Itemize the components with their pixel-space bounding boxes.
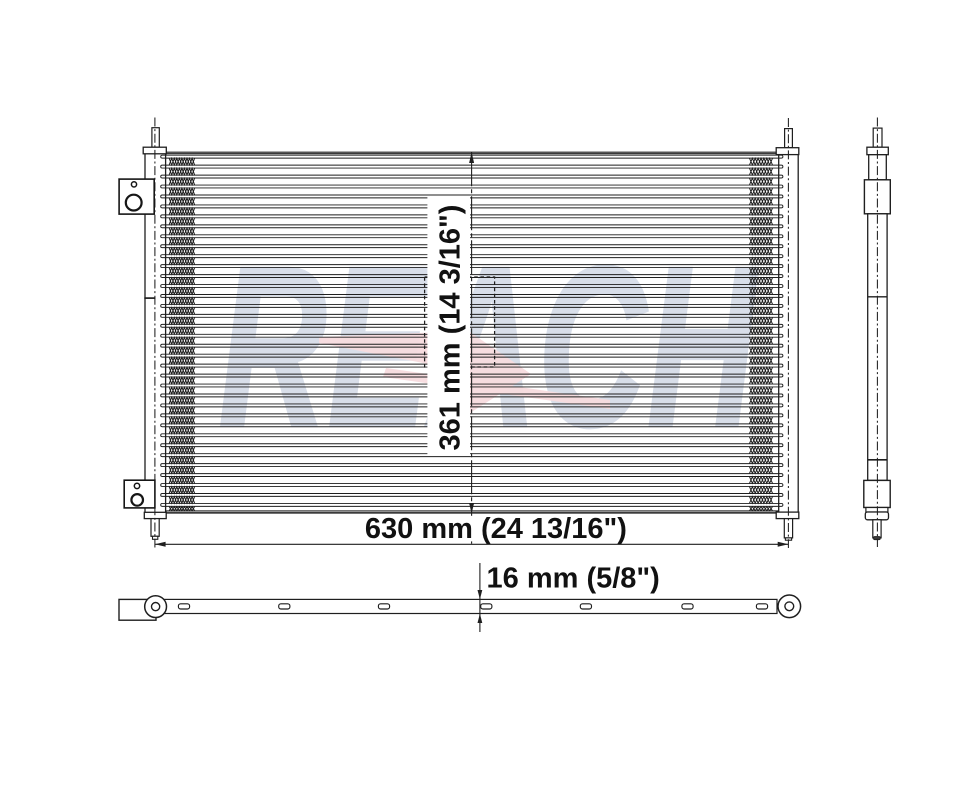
svg-text:630 mm (24 13/16"): 630 mm (24 13/16") <box>365 513 627 545</box>
svg-text:16 mm (5/8"): 16 mm (5/8") <box>487 563 660 595</box>
svg-text:361 mm (14 3/16"): 361 mm (14 3/16") <box>434 205 466 451</box>
